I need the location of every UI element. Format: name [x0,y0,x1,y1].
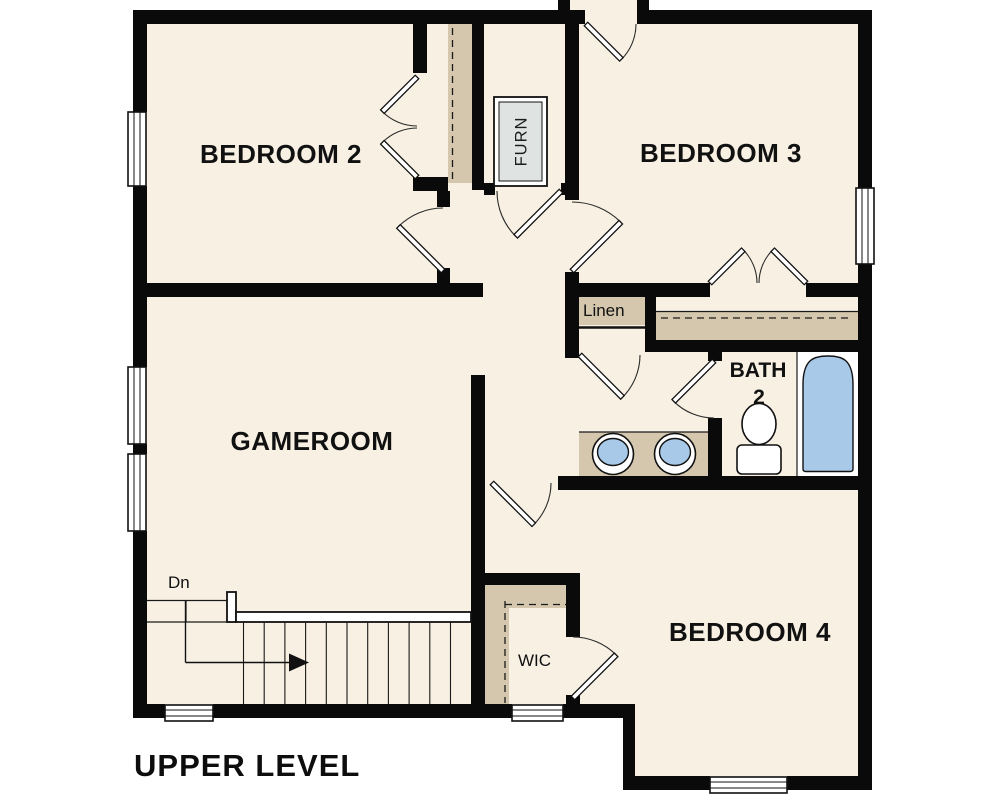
stairs-down-label: Dn [168,573,190,592]
bedroom2-window [128,112,146,186]
bedroom4-label: BEDROOM 4 [669,617,831,647]
wic-window [512,705,563,721]
bedroom2-closet-shelf [448,24,472,183]
stair-rail [236,612,471,622]
floor-plan-page: BEDROOM 2 BEDROOM 3 GAMEROOM BEDROOM 4 B… [0,0,1000,800]
floor-plan-drawing: BEDROOM 2 BEDROOM 3 GAMEROOM BEDROOM 4 B… [0,0,1000,800]
bedroom4-window [710,777,787,793]
page-title: UPPER LEVEL [134,748,360,783]
linen-label: Linen [583,301,625,320]
gameroom-window-upper [128,367,146,444]
sink-left [593,434,634,475]
gameroom-window-lower [128,454,146,531]
bedroom3-closet-shelf [656,312,858,340]
sink-right [655,434,696,475]
bath2-label-line2: 2 [753,386,765,409]
gameroom-label: GAMEROOM [231,426,394,456]
bedroom2-label: BEDROOM 2 [200,139,362,169]
bath2-label-line1: BATH [730,359,787,382]
stairwell-window [165,705,213,721]
furnace-label: FURN [513,117,531,167]
bedroom3-label: BEDROOM 3 [640,138,802,168]
stair-rail-newel [227,592,236,622]
bathtub [803,356,853,472]
wic-label: WIC [518,651,551,670]
bedroom3-window [856,188,874,264]
